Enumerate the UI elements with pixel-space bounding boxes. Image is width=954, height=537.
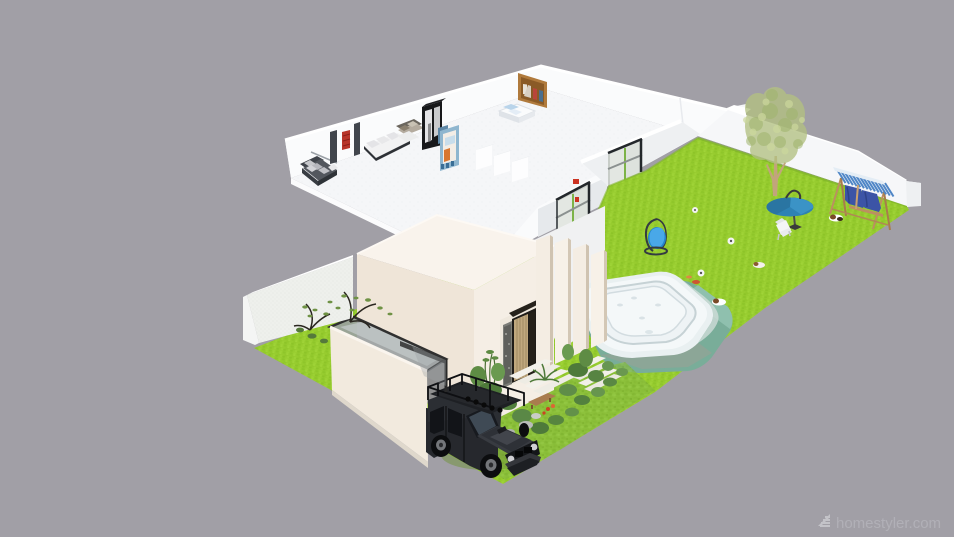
svg-text:homestyler.com: homestyler.com — [836, 515, 941, 532]
